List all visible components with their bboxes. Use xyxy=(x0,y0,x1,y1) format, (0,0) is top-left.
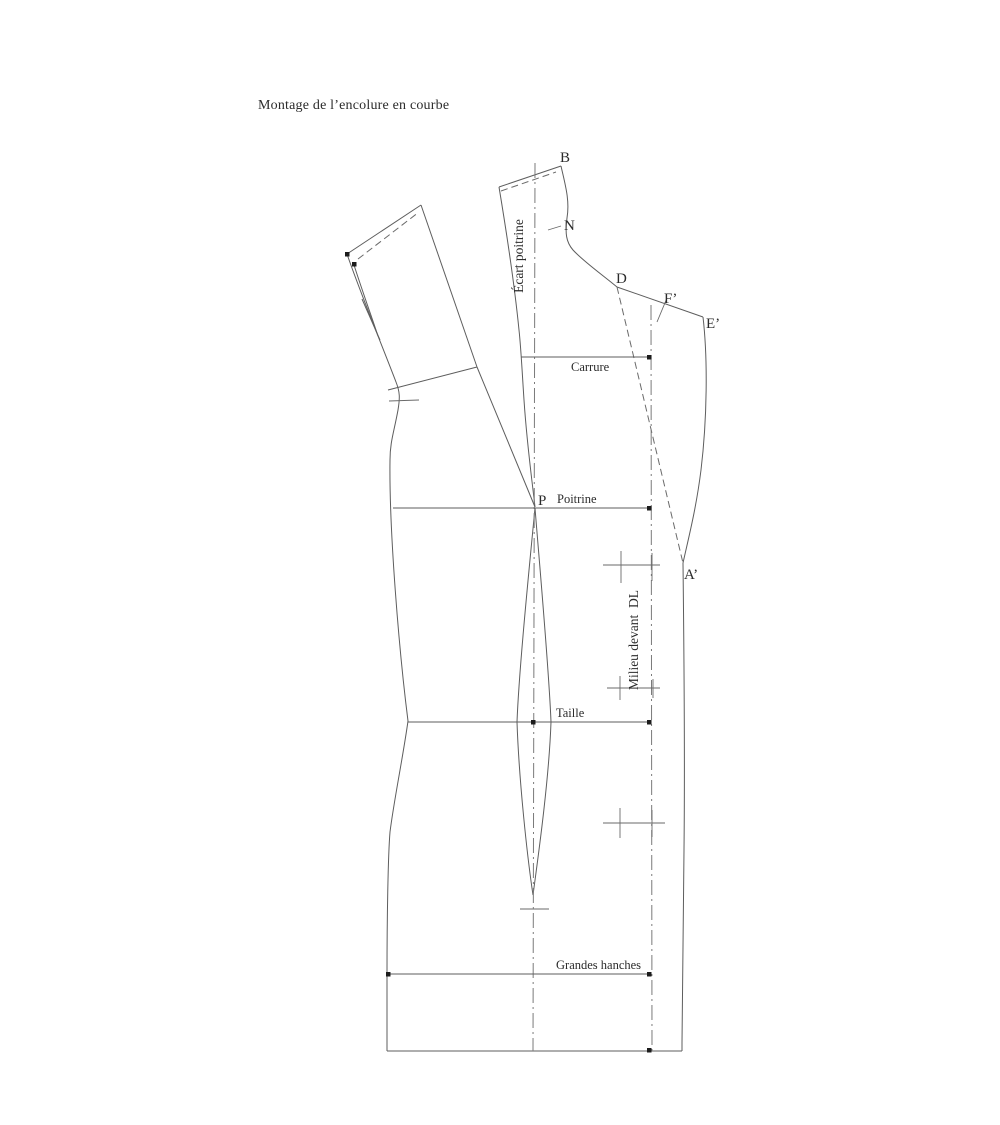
marker-poitrine xyxy=(647,506,652,511)
armhole-notch xyxy=(389,400,419,401)
milieu-devant-axis xyxy=(651,305,652,1051)
point-label-b: B xyxy=(560,150,570,166)
page-title: Montage de l’encolure en courbe xyxy=(258,98,449,113)
axis-label-milieu-devant: Milieu devant DL xyxy=(626,590,641,690)
marker-taille-dart xyxy=(531,720,536,725)
marker-shoulder-1 xyxy=(345,252,350,257)
front-top-edge xyxy=(499,166,561,187)
point-label-f-prime: F’ xyxy=(664,291,677,307)
n-notch xyxy=(548,226,561,230)
side-panel-outline xyxy=(347,205,535,1051)
strip-dashed-fold xyxy=(358,212,419,259)
ecart-poitrine-axis xyxy=(533,163,535,1051)
shoulder-line xyxy=(617,287,703,317)
front-panel-outline xyxy=(387,166,706,1051)
line-label-taille: Taille xyxy=(556,706,585,720)
line-label-poitrine: Poitrine xyxy=(557,492,597,506)
match-mark-3 xyxy=(603,808,665,838)
marker-bottom-cf xyxy=(647,1048,652,1053)
line-label-grandes-hanches: Grandes hanches xyxy=(556,958,641,972)
axis-label-ecart-poitrine: Écart poitrine xyxy=(511,219,526,293)
waist-dart-left xyxy=(517,508,535,895)
seam-line-1 xyxy=(354,265,378,336)
dart-leg-to-p xyxy=(477,367,535,507)
waist-dart-right xyxy=(533,508,551,895)
seam-line-2 xyxy=(362,299,380,340)
marker-hanches-left xyxy=(386,972,391,977)
pattern-diagram: Montage de l’encolure en courbe B N D F’… xyxy=(0,0,1000,1125)
strip-top-edge xyxy=(347,205,421,254)
marker-shoulder-2 xyxy=(352,262,357,267)
strip-bottom-edge xyxy=(388,367,477,390)
armhole-sideseam xyxy=(347,254,408,1051)
pattern-sheet: Montage de l’encolure en courbe B N D F’… xyxy=(0,0,1000,1125)
strip-right-edge xyxy=(421,205,477,367)
line-label-carrure: Carrure xyxy=(571,360,610,374)
point-label-p: P xyxy=(538,493,546,509)
marker-hanches-cf xyxy=(647,972,652,977)
marker-carrure xyxy=(647,355,652,360)
front-right-edge xyxy=(683,317,706,563)
point-label-a-prime: A’ xyxy=(684,567,698,583)
dashed-d-to-a xyxy=(617,287,683,563)
sideseam-lower xyxy=(682,563,684,1051)
point-label-d: D xyxy=(616,271,627,287)
construction-lines xyxy=(388,357,650,974)
marker-taille-cf xyxy=(647,720,652,725)
point-label-n: N xyxy=(564,218,575,234)
point-label-e-prime: E’ xyxy=(706,316,720,332)
front-top-dashed xyxy=(501,172,556,191)
